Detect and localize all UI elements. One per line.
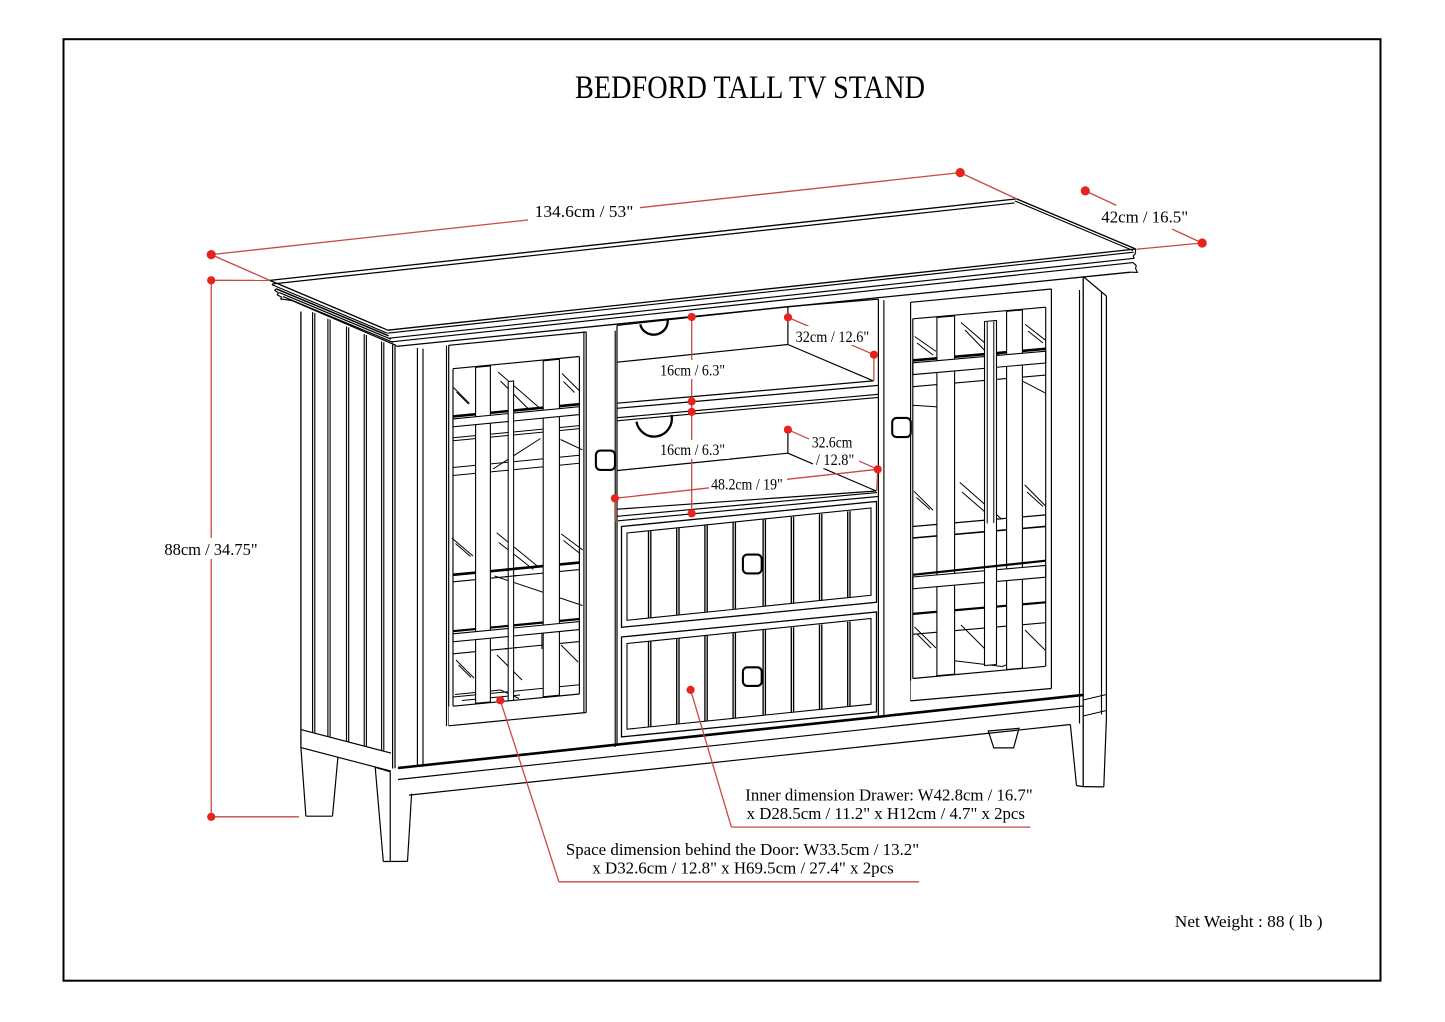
svg-text:88cm / 34.75": 88cm / 34.75"	[164, 540, 257, 559]
svg-text:Space dimension behind the Doo: Space dimension behind the Door: W33.5cm…	[566, 840, 919, 859]
svg-text:134.6cm / 53": 134.6cm / 53"	[535, 202, 634, 221]
svg-text:BEDFORD TALL TV STAND: BEDFORD TALL TV STAND	[575, 70, 925, 106]
svg-text:48.2cm / 19": 48.2cm / 19"	[711, 477, 783, 494]
svg-text:16cm / 6.3": 16cm / 6.3"	[660, 442, 725, 459]
svg-text:32cm / 12.6": 32cm / 12.6"	[796, 329, 870, 346]
svg-text:42cm / 16.5": 42cm / 16.5"	[1101, 208, 1188, 227]
svg-text:x D28.5cm / 11.2" x H12cm / 4.: x D28.5cm / 11.2" x H12cm / 4.7" x 2pcs	[747, 804, 1025, 823]
svg-text:Net Weight : 88 ( lb ): Net Weight : 88 ( lb )	[1175, 912, 1323, 931]
svg-text:16cm / 6.3": 16cm / 6.3"	[660, 363, 725, 380]
svg-text:32.6cm: 32.6cm	[812, 434, 853, 451]
svg-text:/ 12.8": / 12.8"	[816, 452, 854, 469]
svg-text:x D32.6cm / 12.8" x H69.5cm /: x D32.6cm / 12.8" x H69.5cm / 27.4" x 2p…	[592, 859, 893, 878]
svg-text:Inner dimension Drawer: W42.8c: Inner dimension Drawer: W42.8cm / 16.7"	[745, 786, 1032, 805]
